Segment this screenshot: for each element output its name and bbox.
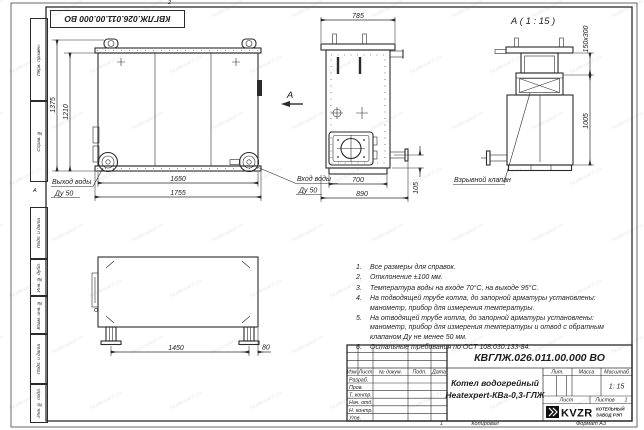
- drawing-sheet: heatexpert.ruheatexpert.ruheatexpert.ruh…: [0, 0, 644, 430]
- margin-cell-vzam-inv: Взам. инв. №: [30, 295, 48, 335]
- col-doc: № докум.: [379, 370, 402, 376]
- scale-value: 1: 15: [609, 384, 625, 391]
- row-razrab: Разраб.: [349, 378, 368, 384]
- dim-detail-1005: 1005: [583, 113, 590, 129]
- dim-front-1375: 1375: [50, 97, 57, 113]
- detail-a-title: А ( 1 : 15 ): [510, 16, 555, 27]
- product-name-line1: Котел водогрейный: [451, 378, 540, 388]
- mass-label: Масса: [579, 370, 595, 376]
- zone-marker-bottom: 1: [440, 421, 443, 427]
- margin-cell-inv-podl: Инв. № подл.: [30, 383, 48, 423]
- section-a-arrow: [281, 101, 290, 107]
- product-name-line2: Heatexpert-КВа-0,3-ГЛЖ: [445, 390, 545, 400]
- scale-label: Масштаб: [604, 370, 630, 376]
- water-inlet-dn: Ду 50: [298, 188, 317, 195]
- dim-bottom-80: 80: [262, 345, 270, 352]
- footer-copied-label: Копировал: [455, 421, 515, 427]
- row-nachotd: Нач. отд.: [349, 400, 373, 406]
- dim-side-890: 890: [356, 191, 368, 198]
- title-block: Изм. Лист № докум. Подп. Дата Разраб. Пр…: [347, 345, 632, 421]
- col-date: Дата: [431, 370, 446, 376]
- col-izm: Изм.: [347, 370, 358, 376]
- note-item: 2.Отклонение ±100 мм.: [356, 273, 624, 282]
- zone-marker-top: 2: [168, 0, 171, 6]
- zone-marker-left: А: [33, 188, 37, 194]
- water-outlet-dn: Ду 50: [54, 191, 73, 198]
- water-outlet-label: Выход воды: [52, 178, 92, 186]
- front-view-dimensions: 1650 1755 1375 1210: [50, 40, 261, 201]
- margin-cell-perv-primen: Перв. примен.: [30, 18, 48, 102]
- dim-front-1755: 1755: [170, 190, 186, 197]
- org-name-line2: ЗАВОД РЭП: [596, 413, 623, 418]
- margin-cell-inv-dubl: Инв. № дубл.: [30, 258, 48, 297]
- sheet-label: Лист: [559, 398, 574, 404]
- row-tkontr: Т. контр.: [349, 393, 372, 399]
- margin-cell-podp-data-2: Подп. и дата: [30, 333, 48, 385]
- sheets-value: 1: [625, 398, 628, 404]
- dim-side-105: 105: [413, 182, 420, 194]
- note-item: 1.Все размеры для справок.: [356, 263, 624, 272]
- dim-bottom-1450: 1450: [168, 345, 184, 352]
- dim-front-1650: 1650: [170, 176, 186, 183]
- dim-front-1210: 1210: [63, 104, 70, 120]
- dim-detail-150x300: 150х300: [583, 25, 590, 52]
- row-utv: Утв.: [349, 415, 361, 421]
- note-item: 5.На отводящей трубе котла, до запорной …: [356, 314, 624, 342]
- footer-format-label: Формат А3: [558, 421, 624, 427]
- org-name-line1: КОТЕЛЬНЫЙ: [596, 407, 625, 412]
- lit-label: Лит.: [550, 370, 563, 376]
- notes-list: 1.Все размеры для справок. 2.Отклонение …: [356, 263, 624, 353]
- side-view: [321, 34, 408, 174]
- mirrored-designation-stamp: КВГЛЖ.026.011.00.000 ВО: [50, 10, 185, 28]
- bottom-view: [92, 257, 259, 345]
- explosion-valve-label: Взрывной клапан: [454, 176, 511, 184]
- note-item: 3.Температура воды на входе 70°С, на вых…: [356, 284, 624, 293]
- kvzr-logo-text: KVZR: [561, 408, 593, 420]
- drawing-views: 1650 1755 1375 1210 Выход воды Ду 50 Вхо…: [0, 0, 644, 430]
- titleblock-designation: КВГЛЖ.026.011.00.000 ВО: [474, 352, 605, 364]
- front-view-labels: Выход воды Ду 50 Вход воды Ду 50 А: [51, 90, 338, 198]
- margin-cell-sprav-no: Справ. №: [30, 100, 48, 182]
- note-item: 6.Остальные требования по ОСТ 108.030.13…: [356, 343, 624, 352]
- front-view: [93, 39, 262, 172]
- row-nkontr: Н. контр.: [349, 408, 373, 414]
- detail-view-a: А ( 1 : 15 ) Взрывной клапан: [453, 16, 573, 185]
- note-item: 4.На подводящей трубе котла, до запорной…: [356, 294, 624, 313]
- sheets-label: Листов: [594, 398, 615, 404]
- water-inlet-label: Вход воды: [297, 175, 332, 183]
- bottom-view-dimensions: 1450 80: [111, 328, 271, 356]
- margin-cell-podp-data-1: Подп. и дата: [30, 207, 48, 260]
- mirrored-designation-text: КВГЛЖ.026.011.00.000 ВО: [65, 14, 171, 24]
- section-a-letter: А: [286, 90, 293, 101]
- dim-side-700: 700: [352, 177, 364, 184]
- row-prov: Пров.: [349, 385, 363, 391]
- dim-side-785: 785: [352, 13, 364, 20]
- col-sign: Подп.: [412, 370, 426, 376]
- col-list: Лист: [358, 370, 373, 376]
